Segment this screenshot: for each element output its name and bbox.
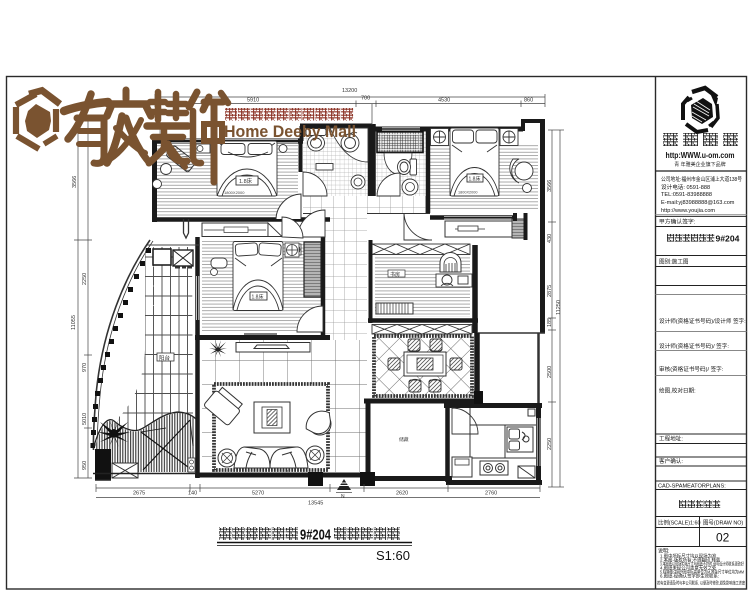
svg-text:甲方确认签字:: 甲方确认签字: [659,218,696,226]
svg-text:185: 185 [547,318,553,327]
svg-text:11250: 11250 [556,300,562,315]
svg-text:700: 700 [361,96,370,102]
svg-text:设计师(资格证书号码)/设计师 签字:: 设计师(资格证书号码)/设计师 签字: [659,317,746,325]
svg-text:5910: 5910 [247,98,259,104]
svg-text:02: 02 [716,531,730,545]
svg-text:2500: 2500 [547,366,553,378]
svg-text:书房: 书房 [390,271,400,278]
svg-text:5010: 5010 [82,413,88,425]
svg-text:S1:60: S1:60 [376,548,410,563]
svg-text:2760: 2760 [485,491,497,497]
svg-text:公司地址:福州市金山区浦上大道138号: 公司地址:福州市金山区浦上大道138号 [661,175,742,183]
svg-text:9#204: 9#204 [300,528,331,544]
svg-text:2620: 2620 [396,491,408,497]
svg-text:E-mail:yj83988888@163.com: E-mail:yj83988888@163.com [661,200,735,206]
svg-text:青 年雅美企业旗下品牌: 青 年雅美企业旗下品牌 [674,161,725,168]
svg-text:9#204: 9#204 [716,234,740,244]
svg-text:970: 970 [82,363,88,372]
svg-text:储藏: 储藏 [399,436,409,443]
svg-text:2875: 2875 [547,285,553,297]
svg-text:N: N [341,494,345,500]
svg-text:工程地址:: 工程地址: [659,435,683,443]
svg-text:4530: 4530 [438,98,450,104]
svg-text:设计师(资格证书号码)/ 签字:: 设计师(资格证书号码)/ 签字: [659,342,729,350]
svg-text:11055: 11055 [71,315,77,330]
svg-text:图别:施工图: 图别:施工图 [659,258,689,266]
svg-text:1.8床: 1.8床 [239,177,253,185]
svg-text:若有变更请及时与本公司联系, 以便及时修改,避免影响施工进度: 若有变更请及时与本公司联系, 以便及时修改,避免影响施工进度 [657,580,745,587]
svg-text:860: 860 [524,98,533,104]
svg-text:http://www.youjia.com: http://www.youjia.com [661,208,715,214]
svg-text:http:WWW.u-om.com: http:WWW.u-om.com [666,150,735,160]
svg-text:阳台: 阳台 [159,354,171,362]
svg-text:140: 140 [188,491,197,497]
svg-text:13200: 13200 [342,88,357,94]
svg-text:2250: 2250 [547,438,553,450]
svg-text:审核(资格证书号码)/ 签字:: 审核(资格证书号码)/ 签字: [659,365,724,373]
svg-text:430: 430 [547,234,553,243]
svg-text:1.8床: 1.8床 [252,294,264,301]
svg-text:2250: 2250 [82,273,88,285]
svg-text:Home Deeby Mall: Home Deeby Mall [224,123,356,141]
svg-text:1800X2000: 1800X2000 [224,190,245,195]
svg-text:CAD-SPAMEATORPLANS:: CAD-SPAMEATORPLANS: [658,484,726,490]
svg-text:13545: 13545 [308,501,323,507]
svg-text:1.8床: 1.8床 [469,176,481,183]
svg-text:比例(SCALE)1:60: 比例(SCALE)1:60 [658,519,701,527]
svg-text:TEL:0591-83988888: TEL:0591-83988888 [661,192,712,198]
svg-text:3566: 3566 [547,180,553,192]
svg-text:6.图纸-经确认签字即生效联系:: 6.图纸-经确认签字即生效联系: [660,573,719,580]
svg-text:客户确认:: 客户确认: [659,457,683,465]
svg-text:950: 950 [82,461,88,470]
svg-text:2675: 2675 [133,491,145,497]
svg-text:5270: 5270 [252,491,264,497]
svg-text:设计电话: 0591-888: 设计电话: 0591-888 [661,183,710,191]
svg-text:图号(DRAW NO): 图号(DRAW NO) [703,519,743,527]
svg-text:1800X2000: 1800X2000 [458,191,477,195]
svg-text:3566: 3566 [72,176,78,188]
svg-text:绘图,校对日期:: 绘图,校对日期: [659,387,696,395]
